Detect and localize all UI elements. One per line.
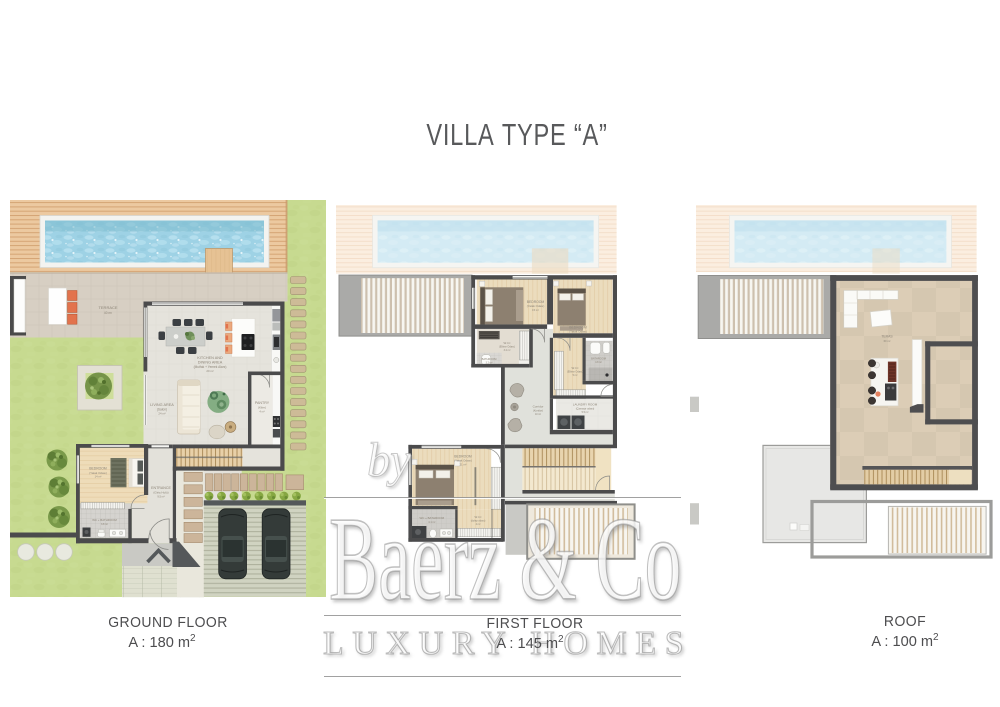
svg-text:(Yatak Odası): (Yatak Odası) (454, 459, 472, 463)
svg-text:(Koridor): (Koridor) (533, 408, 543, 412)
svg-text:14 m²: 14 m² (95, 475, 102, 479)
svg-text:W.I.C: W.I.C (503, 341, 510, 345)
svg-text:4 m²: 4 m² (259, 410, 264, 414)
svg-text:KITCHEN AND: KITCHEN AND (197, 356, 223, 360)
svg-text:20 m²: 20 m² (206, 369, 213, 373)
svg-text:WC + BATHROOM: WC + BATHROOM (92, 518, 117, 522)
svg-text:4.8 m²: 4.8 m² (595, 361, 602, 364)
svg-text:BATHROOM: BATHROOM (591, 357, 606, 361)
svg-text:PANTRY: PANTRY (255, 401, 270, 405)
svg-text:(Kiler): (Kiler) (258, 406, 266, 410)
svg-text:3.8 m²: 3.8 m² (101, 523, 108, 526)
svg-text:(Giriş Holü): (Giriş Holü) (153, 491, 168, 495)
svg-text:TERAS: TERAS (881, 335, 893, 339)
svg-text:21 m²: 21 m² (460, 463, 467, 467)
svg-text:(Yatak Odası): (Yatak Odası) (89, 471, 107, 475)
svg-text:(Yatak Odası): (Yatak Odası) (527, 304, 545, 308)
svg-text:LIVING AREA: LIVING AREA (150, 403, 174, 407)
svg-text:10 m²: 10 m² (535, 413, 541, 416)
svg-text:(Çamaşır odası): (Çamaşır odası) (576, 406, 595, 410)
svg-text:BATHROOM: BATHROOM (482, 357, 497, 361)
svg-text:9.5 m²: 9.5 m² (157, 495, 164, 499)
svg-text:5 m²: 5 m² (573, 374, 578, 377)
svg-text:60 m²: 60 m² (884, 339, 891, 343)
svg-text:(Yatak Odası): (Yatak Odası) (569, 330, 587, 334)
svg-text:DINING AREA: DINING AREA (198, 361, 223, 365)
svg-text:24 m²: 24 m² (158, 412, 165, 416)
svg-text:40 m²: 40 m² (104, 311, 112, 315)
svg-text:5.5 m²: 5.5 m² (582, 411, 589, 414)
svg-text:15 m²: 15 m² (532, 308, 539, 312)
svg-text:W.I.C: W.I.C (571, 366, 578, 370)
svg-text:Corridor: Corridor (533, 405, 544, 409)
svg-text:ENTRANCE: ENTRANCE (151, 486, 171, 490)
svg-text:LAUNDRY ROOM: LAUNDRY ROOM (573, 403, 598, 407)
svg-text:3.2 m²: 3.2 m² (504, 349, 511, 352)
svg-text:TERRACE: TERRACE (98, 305, 117, 310)
